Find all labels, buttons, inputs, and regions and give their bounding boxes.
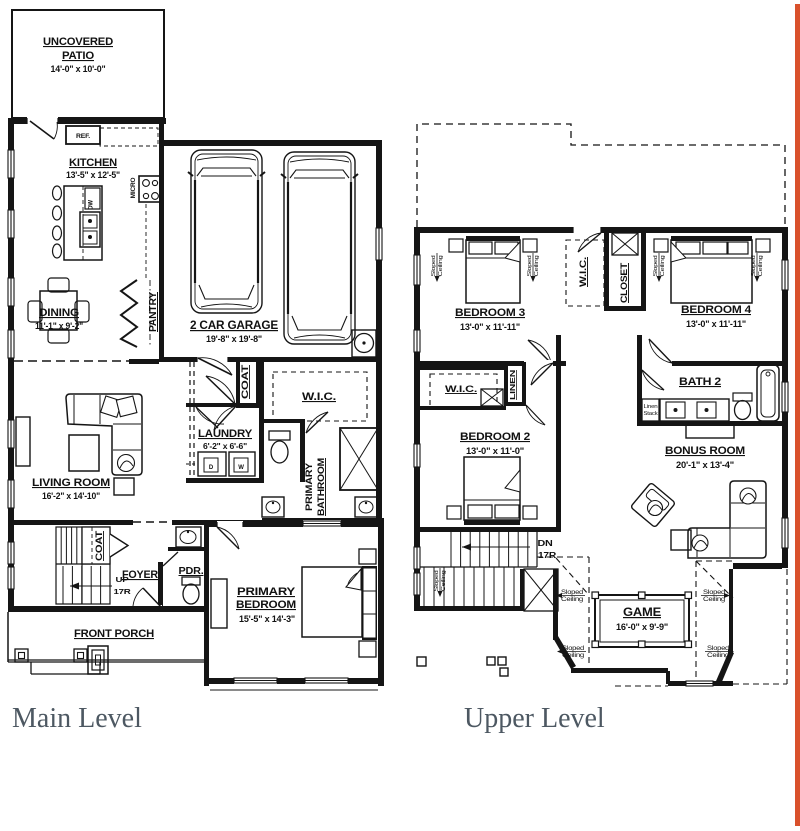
svg-text:PATIO: PATIO [62, 50, 95, 62]
svg-text:Sloped: Sloped [434, 570, 440, 591]
svg-text:DN: DN [538, 539, 554, 548]
svg-text:Ceiling: Ceiling [703, 597, 725, 603]
svg-text:16'-2" x 14'-10": 16'-2" x 14'-10" [42, 491, 100, 502]
svg-text:PRIMARY: PRIMARY [304, 462, 315, 511]
svg-text:REF.: REF. [76, 133, 90, 140]
svg-text:CLOSET: CLOSET [619, 263, 630, 303]
svg-text:Ceiling: Ceiling [758, 255, 764, 276]
svg-text:BEDROOM 4: BEDROOM 4 [681, 304, 752, 316]
svg-text:FRONT PORCH: FRONT PORCH [74, 628, 154, 640]
svg-text:MICRO: MICRO [130, 178, 137, 199]
svg-text:LAUNDRY: LAUNDRY [198, 428, 253, 440]
svg-text:6'-2" x 6'-6": 6'-2" x 6'-6" [203, 441, 247, 451]
svg-text:Ceiling: Ceiling [707, 653, 729, 659]
svg-text:16'-0" x 9'-9": 16'-0" x 9'-9" [616, 622, 668, 633]
svg-text:BEDROOM 3: BEDROOM 3 [455, 307, 525, 319]
svg-text:W.I.C.: W.I.C. [302, 391, 336, 403]
svg-text:GAME: GAME [623, 605, 661, 619]
svg-text:W: W [238, 465, 244, 471]
svg-text:20'-1" x 13'-4": 20'-1" x 13'-4" [676, 460, 734, 471]
svg-text:DW: DW [89, 200, 95, 210]
svg-text:BEDROOM 2: BEDROOM 2 [460, 431, 530, 443]
svg-text:13'-0" x 11'-11": 13'-0" x 11'-11" [686, 319, 746, 330]
svg-text:LIVING ROOM: LIVING ROOM [32, 477, 110, 489]
svg-text:BATHROOM: BATHROOM [316, 458, 327, 516]
svg-text:13'-0" x 11'-11": 13'-0" x 11'-11" [460, 322, 520, 333]
svg-text:17R: 17R [114, 587, 132, 596]
svg-text:LINEN: LINEN [508, 370, 517, 400]
svg-text:Upper Level: Upper Level [464, 703, 605, 734]
svg-text:Sloped: Sloped [431, 255, 437, 276]
svg-text:W.I.C.: W.I.C. [445, 384, 477, 395]
svg-text:PRIMARY: PRIMARY [237, 586, 296, 598]
svg-text:Linen: Linen [644, 404, 658, 410]
svg-text:Ceiling: Ceiling [534, 255, 540, 276]
svg-text:11'-1" x 9'-2": 11'-1" x 9'-2" [35, 321, 83, 331]
svg-text:14'-0" x 10'-0": 14'-0" x 10'-0" [51, 64, 106, 75]
svg-text:Ceiling: Ceiling [660, 255, 666, 276]
svg-text:Ceiling: Ceiling [562, 653, 584, 659]
svg-text:Stack: Stack [644, 411, 658, 417]
svg-text:13'-5" x 12'-5": 13'-5" x 12'-5" [66, 170, 120, 181]
svg-text:Sloped: Sloped [527, 255, 533, 276]
svg-text:DINING: DINING [39, 307, 79, 319]
svg-text:FOYER: FOYER [122, 569, 158, 581]
svg-text:COAT: COAT [240, 364, 250, 399]
svg-text:Ceiling: Ceiling [438, 255, 444, 276]
svg-text:Main Level: Main Level [12, 703, 142, 734]
svg-text:BEDROOM: BEDROOM [236, 599, 296, 611]
svg-text:Ceiling: Ceiling [561, 597, 583, 603]
svg-text:PDR.: PDR. [179, 566, 204, 577]
svg-text:BATH 2: BATH 2 [679, 376, 721, 388]
svg-text:19'-8" x 19'-8": 19'-8" x 19'-8" [206, 334, 262, 345]
svg-text:KITCHEN: KITCHEN [69, 157, 117, 169]
svg-text:Sloped: Sloped [653, 255, 659, 276]
svg-text:UNCOVERED: UNCOVERED [43, 36, 113, 48]
svg-text:17R: 17R [538, 551, 557, 560]
svg-text:2 CAR GARAGE: 2 CAR GARAGE [190, 318, 278, 332]
svg-text:BONUS ROOM: BONUS ROOM [665, 445, 745, 457]
svg-text:Ceiling: Ceiling [441, 570, 447, 591]
svg-text:15'-5" x 14'-3": 15'-5" x 14'-3" [239, 614, 295, 625]
svg-text:Sloped: Sloped [751, 255, 757, 276]
svg-text:W.I.C.: W.I.C. [578, 257, 589, 287]
svg-text:PANTRY: PANTRY [148, 291, 159, 332]
svg-text:COAT: COAT [94, 530, 104, 561]
svg-text:13'-0" x 11'-0": 13'-0" x 11'-0" [466, 446, 524, 457]
